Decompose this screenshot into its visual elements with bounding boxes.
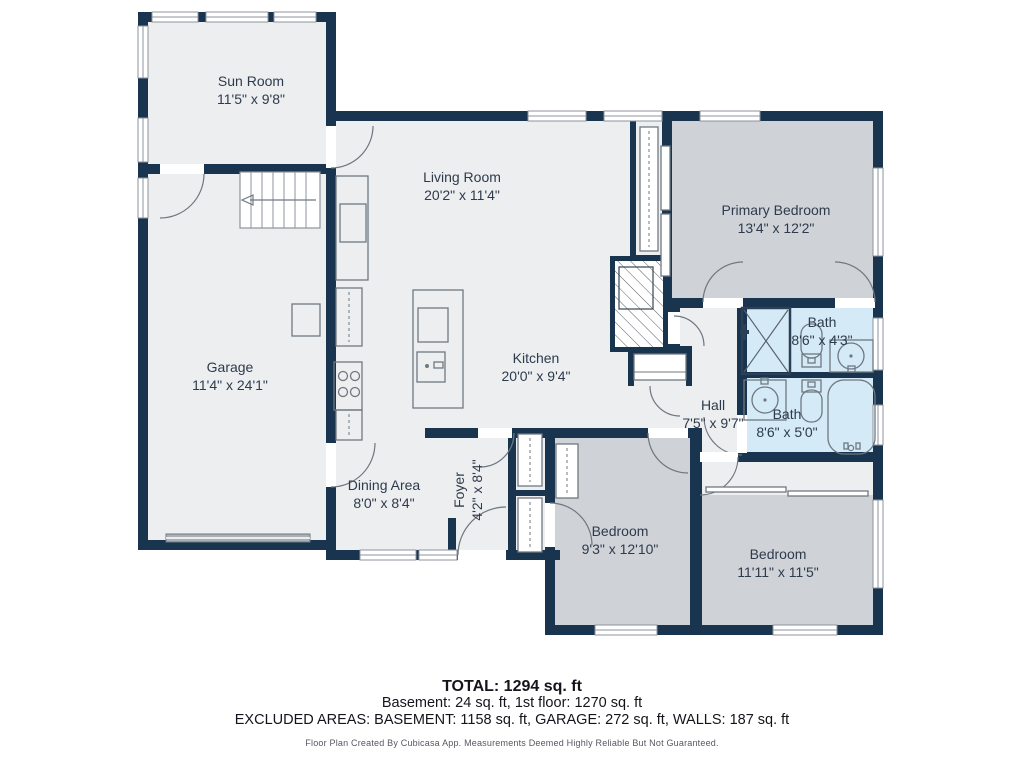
- window: [873, 500, 883, 588]
- room-label-garage: Garage: [207, 359, 254, 375]
- foyer-closet-shelf: [518, 434, 542, 486]
- room-dims-kitchen: 20'0" x 9'4": [502, 368, 571, 384]
- room-dims-living-room: 20'2" x 11'4": [424, 187, 500, 203]
- window: [138, 26, 148, 78]
- garage-door: [166, 534, 310, 542]
- window: [773, 625, 837, 635]
- room-dims-foyer: 4'2" x 8'4": [469, 459, 485, 520]
- window: [138, 118, 148, 162]
- window: [138, 178, 148, 218]
- bedroom-left-closet-shelf: [518, 498, 542, 552]
- room-dims-sun-room: 11'5" x 9'8": [217, 91, 285, 107]
- window: [873, 168, 883, 256]
- floor-plan-drawing: Sun Room 11'5" x 9'8" Living Room 20'2" …: [0, 0, 1024, 668]
- room-label-dining-area: Dining Area: [348, 477, 421, 493]
- total-area-text: TOTAL: 1294 sq. ft: [0, 678, 1024, 695]
- window: [206, 12, 268, 22]
- floor-plan-page: Sun Room 11'5" x 9'8" Living Room 20'2" …: [0, 0, 1024, 768]
- room-label-sun-room: Sun Room: [218, 73, 284, 89]
- sliding-door-panel: [661, 214, 670, 276]
- room-label-foyer: Foyer: [451, 472, 467, 508]
- excluded-areas-text: EXCLUDED AREAS: BASEMENT: 1158 sq. ft, G…: [0, 712, 1024, 729]
- room-label-living-room: Living Room: [423, 169, 501, 185]
- room-label-hall: Hall: [701, 397, 725, 413]
- room-label-bedroom-right: Bedroom: [750, 546, 807, 562]
- floor-areas-text: Basement: 24 sq. ft, 1st floor: 1270 sq.…: [0, 695, 1024, 712]
- window: [604, 111, 662, 121]
- room-dims-primary-bedroom: 13'4" x 12'2": [738, 220, 815, 236]
- room-label-bath-hall: Bath: [773, 406, 802, 422]
- room-dims-bath-ensuite: 8'6" x 4'3": [791, 332, 852, 348]
- room-dims-bath-hall: 8'6" x 5'0": [756, 424, 817, 440]
- window: [595, 625, 657, 635]
- window: [700, 111, 760, 121]
- window: [274, 12, 316, 22]
- sliding-door-panel: [661, 146, 670, 210]
- window: [419, 550, 457, 560]
- chimney: [610, 256, 668, 352]
- hall-closet: [634, 354, 686, 380]
- bedroom-right-floor: [697, 495, 878, 630]
- disclaimer-text: Floor Plan Created By Cubicasa App. Meas…: [0, 738, 1024, 748]
- room-label-bedroom-left: Bedroom: [592, 523, 649, 539]
- room-dims-hall: 7'5" x 9'7": [682, 415, 743, 431]
- room-label-kitchen: Kitchen: [513, 350, 560, 366]
- room-dims-dining-area: 8'0" x 8'4": [353, 495, 414, 511]
- window: [152, 12, 198, 22]
- bedroom-left-inner-closet: [556, 444, 578, 498]
- room-label-bath-ensuite: Bath: [808, 314, 837, 330]
- room-dims-garage: 11'4" x 24'1": [192, 377, 268, 393]
- staircase: [240, 172, 320, 228]
- window: [360, 550, 416, 560]
- summary-footer: TOTAL: 1294 sq. ft Basement: 24 sq. ft, …: [0, 678, 1024, 748]
- room-dims-bedroom-right: 11'11" x 11'5": [737, 564, 818, 580]
- room-dims-bedroom-left: 9'3" x 12'10": [582, 541, 659, 557]
- room-label-primary-bedroom: Primary Bedroom: [722, 202, 831, 218]
- bath-hall-floor: [742, 376, 878, 458]
- window: [528, 111, 586, 121]
- window: [873, 318, 883, 370]
